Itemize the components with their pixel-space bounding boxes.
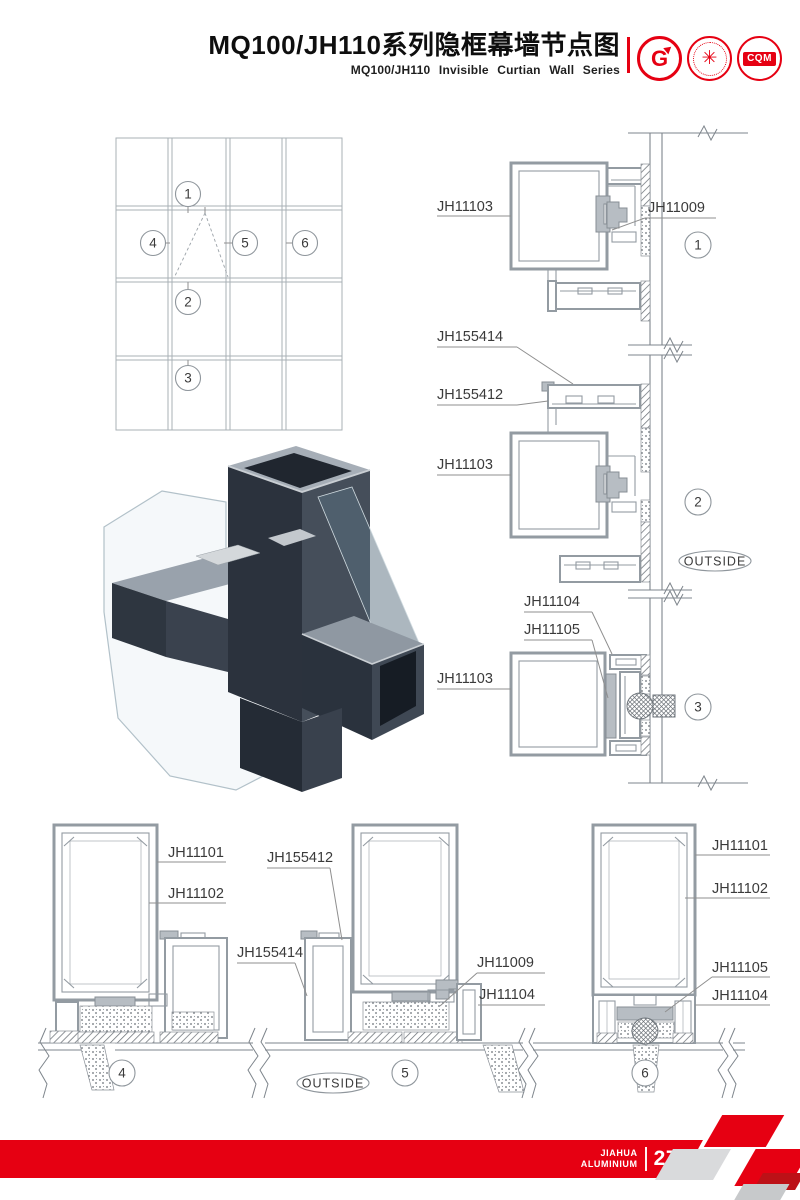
callout-number: 3 <box>184 371 192 386</box>
part-label: JH155414 <box>437 329 503 345</box>
part-label: JH11101 <box>168 845 224 861</box>
profile-3d-render <box>104 446 424 792</box>
part-label: JH155412 <box>267 850 333 866</box>
callout-number: 2 <box>694 495 702 510</box>
part-label: JH11103 <box>437 457 493 473</box>
brand-name: JIAHUA ALUMINIUM <box>581 1148 638 1170</box>
callout-2-section: 2 <box>685 489 711 515</box>
part-label: JH11103 <box>437 671 493 687</box>
part-label: JH11102 <box>168 886 224 902</box>
callout-number: 3 <box>694 700 702 715</box>
section-detail-3: JH11104 JH11105 JH11103 3 <box>437 594 711 755</box>
callout-3-section: 3 <box>685 694 711 720</box>
footer-deco-shape <box>733 1184 790 1200</box>
callout-number: 4 <box>149 236 157 251</box>
section-detail-2: JH155414 JH155412 JH11103 2 OUTSIDE <box>437 329 751 582</box>
callout-number: 2 <box>184 295 192 310</box>
outside-label-horizontal: OUTSIDE <box>297 1073 369 1093</box>
outside-text: OUTSIDE <box>684 555 747 569</box>
outside-label-vertical: OUTSIDE <box>679 551 751 571</box>
gasket-seal <box>632 1018 658 1044</box>
footer-text: JIAHUA ALUMINIUM 27 <box>540 1144 678 1174</box>
callout-number: 5 <box>401 1066 409 1081</box>
part-label: JH11104 <box>524 594 580 610</box>
elevation-diagram: 1 2 3 4 5 6 <box>116 138 342 430</box>
callout-3-elevation: 3 <box>176 366 201 391</box>
callout-number: 5 <box>241 236 249 251</box>
callout-number: 1 <box>694 238 702 253</box>
catalog-page: MQ100/JH110系列隐框幕墙节点图 MQ100/JH110 Invisib… <box>0 0 800 1200</box>
sealant-joint <box>483 1045 524 1092</box>
vent-opening-symbol <box>174 213 228 278</box>
callout-6-elevation: 6 <box>293 231 318 256</box>
callout-1-elevation: 1 <box>176 182 201 207</box>
callout-number: 6 <box>641 1066 649 1081</box>
footer-divider <box>645 1147 647 1171</box>
sealant-joint <box>80 1045 114 1090</box>
gasket-seal <box>627 693 653 719</box>
brand-line1: JIAHUA <box>581 1148 638 1159</box>
callout-5-section: 5 <box>392 1060 418 1086</box>
part-label: JH11009 <box>648 200 705 216</box>
callout-number: 4 <box>118 1066 126 1081</box>
part-label: JH11105 <box>524 622 580 638</box>
technical-drawing-canvas: 1 2 3 4 5 6 <box>0 0 800 1200</box>
part-label: JH155414 <box>237 945 303 961</box>
section-details-vertical: JH11103 JH11009 1 <box>437 126 751 790</box>
outside-text: OUTSIDE <box>302 1077 365 1091</box>
section-detail-6: JH11101 JH11102 JH11105 JH11104 6 <box>593 825 770 1086</box>
part-label: JH11104 <box>479 987 535 1003</box>
part-label: JH11104 <box>712 988 768 1004</box>
callout-number: 6 <box>301 236 309 251</box>
section-detail-1: JH11103 JH11009 1 <box>437 163 716 321</box>
section-detail-4: JH11101 JH11102 4 <box>50 825 227 1086</box>
brand-line2: ALUMINIUM <box>581 1159 638 1170</box>
callout-4-section: 4 <box>109 1060 135 1086</box>
part-label: JH11009 <box>477 955 534 971</box>
callout-1-section: 1 <box>685 232 711 258</box>
section-details-horizontal: JH11101 JH11102 4 <box>38 825 770 1098</box>
part-label: JH155412 <box>437 387 503 403</box>
callout-number: 1 <box>184 187 192 202</box>
part-label: JH11101 <box>712 838 768 854</box>
callout-4-elevation: 4 <box>141 231 166 256</box>
callout-5-elevation: 5 <box>233 231 258 256</box>
callout-2-elevation: 2 <box>176 290 201 315</box>
callout-6-section: 6 <box>632 1060 658 1086</box>
part-label: JH11105 <box>712 960 768 976</box>
part-label: JH11102 <box>712 881 768 897</box>
part-label: JH11103 <box>437 199 493 215</box>
